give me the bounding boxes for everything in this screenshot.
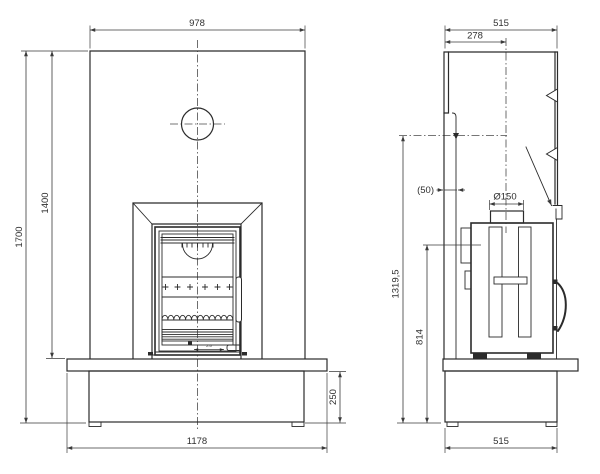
convection-arrow-upper <box>547 89 558 102</box>
door-handle <box>236 277 242 322</box>
fireplace-dimension-drawing: 2-0 978 1700 1400 1178 250 <box>0 0 600 474</box>
stove-door: 2-0 <box>155 227 242 355</box>
side-foot-rear <box>447 422 458 427</box>
plinth-foot-left <box>89 422 101 427</box>
dim-overall-height: 1700 <box>14 226 25 247</box>
dim-surround-height: 1400 <box>40 192 51 213</box>
front-dimensions: 978 1700 1400 1178 250 <box>14 18 346 453</box>
dim-wall-clearance: (50) <box>417 185 434 196</box>
ash-lip <box>227 345 241 351</box>
hearth-slab-front <box>67 359 327 371</box>
door-vent-detail-dim: 2-0 <box>194 343 224 351</box>
side-foot-front <box>546 422 557 427</box>
dim-base-height: 250 <box>328 389 339 405</box>
side-view: 515 278 (50) Ø150 1319,5 814 515 <box>391 18 579 453</box>
dim-flue-diameter: Ø150 <box>493 192 516 203</box>
latch-pin <box>188 342 192 346</box>
hearth-plinth-front <box>89 371 304 422</box>
hearth-plinth-side <box>445 371 557 422</box>
airflow-arrow-down <box>453 133 459 140</box>
airwash-band <box>161 238 234 248</box>
stove-body-side <box>461 219 566 359</box>
dim-overall-depth: 515 <box>493 18 509 29</box>
hearth-slab-side <box>443 359 578 371</box>
casing-and-wall <box>444 52 562 359</box>
slot-crossbar <box>494 277 527 284</box>
dim-flue-centre-offset: 278 <box>467 31 483 42</box>
rear-bracket-upper <box>461 228 471 263</box>
handle-pivot-bottom <box>553 326 558 331</box>
flue-collar <box>491 211 524 223</box>
technical-drawing-page: 2-0 978 1700 1400 1178 250 <box>0 0 600 474</box>
dim-door-vent-detail: 2-0 <box>206 343 213 348</box>
dim-base-depth: 515 <box>493 436 509 447</box>
stove-foot-front <box>527 353 541 359</box>
frame-top-hook <box>553 206 562 220</box>
air-guide-line <box>526 147 552 206</box>
dim-surround-width: 978 <box>189 18 205 29</box>
door-handle-side <box>558 283 566 331</box>
side-dimensions: 515 278 (50) Ø150 1319,5 814 515 <box>391 18 558 453</box>
stove-foot-rear <box>473 353 487 359</box>
convection-arrow-lower <box>547 148 558 161</box>
rear-bracket-lower <box>465 271 471 289</box>
plinth-foot-right <box>292 422 304 427</box>
dim-flue-reference-height: 1319,5 <box>391 269 402 298</box>
front-view: 2-0 978 1700 1400 1178 250 <box>14 18 346 453</box>
dim-base-width: 1178 <box>187 436 207 447</box>
dim-rear-outlet-height: 814 <box>415 329 426 345</box>
